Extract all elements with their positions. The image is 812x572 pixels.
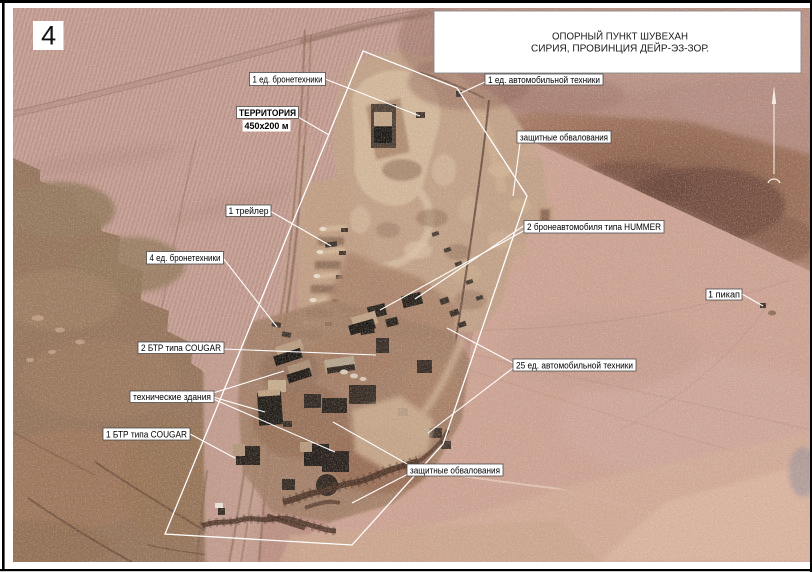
svg-text:ОПОРНЫЙ ПУНКТ ШУВЕХАН: ОПОРНЫЙ ПУНКТ ШУВЕХАН bbox=[552, 29, 688, 42]
svg-text:450x200 м: 450x200 м bbox=[245, 121, 289, 131]
svg-text:ТЕРРИТОРИЯ: ТЕРРИТОРИЯ bbox=[239, 108, 296, 118]
svg-text:2 бронеавтомобиля типа HUMMER: 2 бронеавтомобиля типа HUMMER bbox=[527, 222, 661, 232]
svg-text:4 ед. бронетехники: 4 ед. бронетехники bbox=[150, 253, 221, 263]
svg-text:1 БТР типа COUGAR: 1 БТР типа COUGAR bbox=[106, 430, 187, 440]
svg-text:СИРИЯ, ПРОВИНЦИЯ ДЕЙР-ЭЗ-ЗОР.: СИРИЯ, ПРОВИНЦИЯ ДЕЙР-ЭЗ-ЗОР. bbox=[531, 41, 709, 54]
svg-text:1 пикап: 1 пикап bbox=[708, 290, 740, 300]
svg-text:4: 4 bbox=[41, 20, 56, 50]
svg-text:2 БТР типа COUGAR: 2 БТР типа COUGAR bbox=[141, 343, 221, 353]
svg-text:25 ед. автомобильной техники: 25 ед. автомобильной техники bbox=[516, 361, 633, 371]
svg-text:1 ед. бронетехники: 1 ед. бронетехники bbox=[253, 75, 323, 85]
svg-text:1 трейлер: 1 трейлер bbox=[229, 206, 269, 216]
svg-text:защитные обвалования: защитные обвалования bbox=[520, 133, 608, 143]
svg-text:1 ед. автомобильной техники: 1 ед. автомобильной техники bbox=[488, 75, 600, 85]
svg-text:защитные обвалования: защитные обвалования bbox=[410, 466, 500, 476]
svg-text:технические здания: технические здания bbox=[133, 392, 211, 402]
